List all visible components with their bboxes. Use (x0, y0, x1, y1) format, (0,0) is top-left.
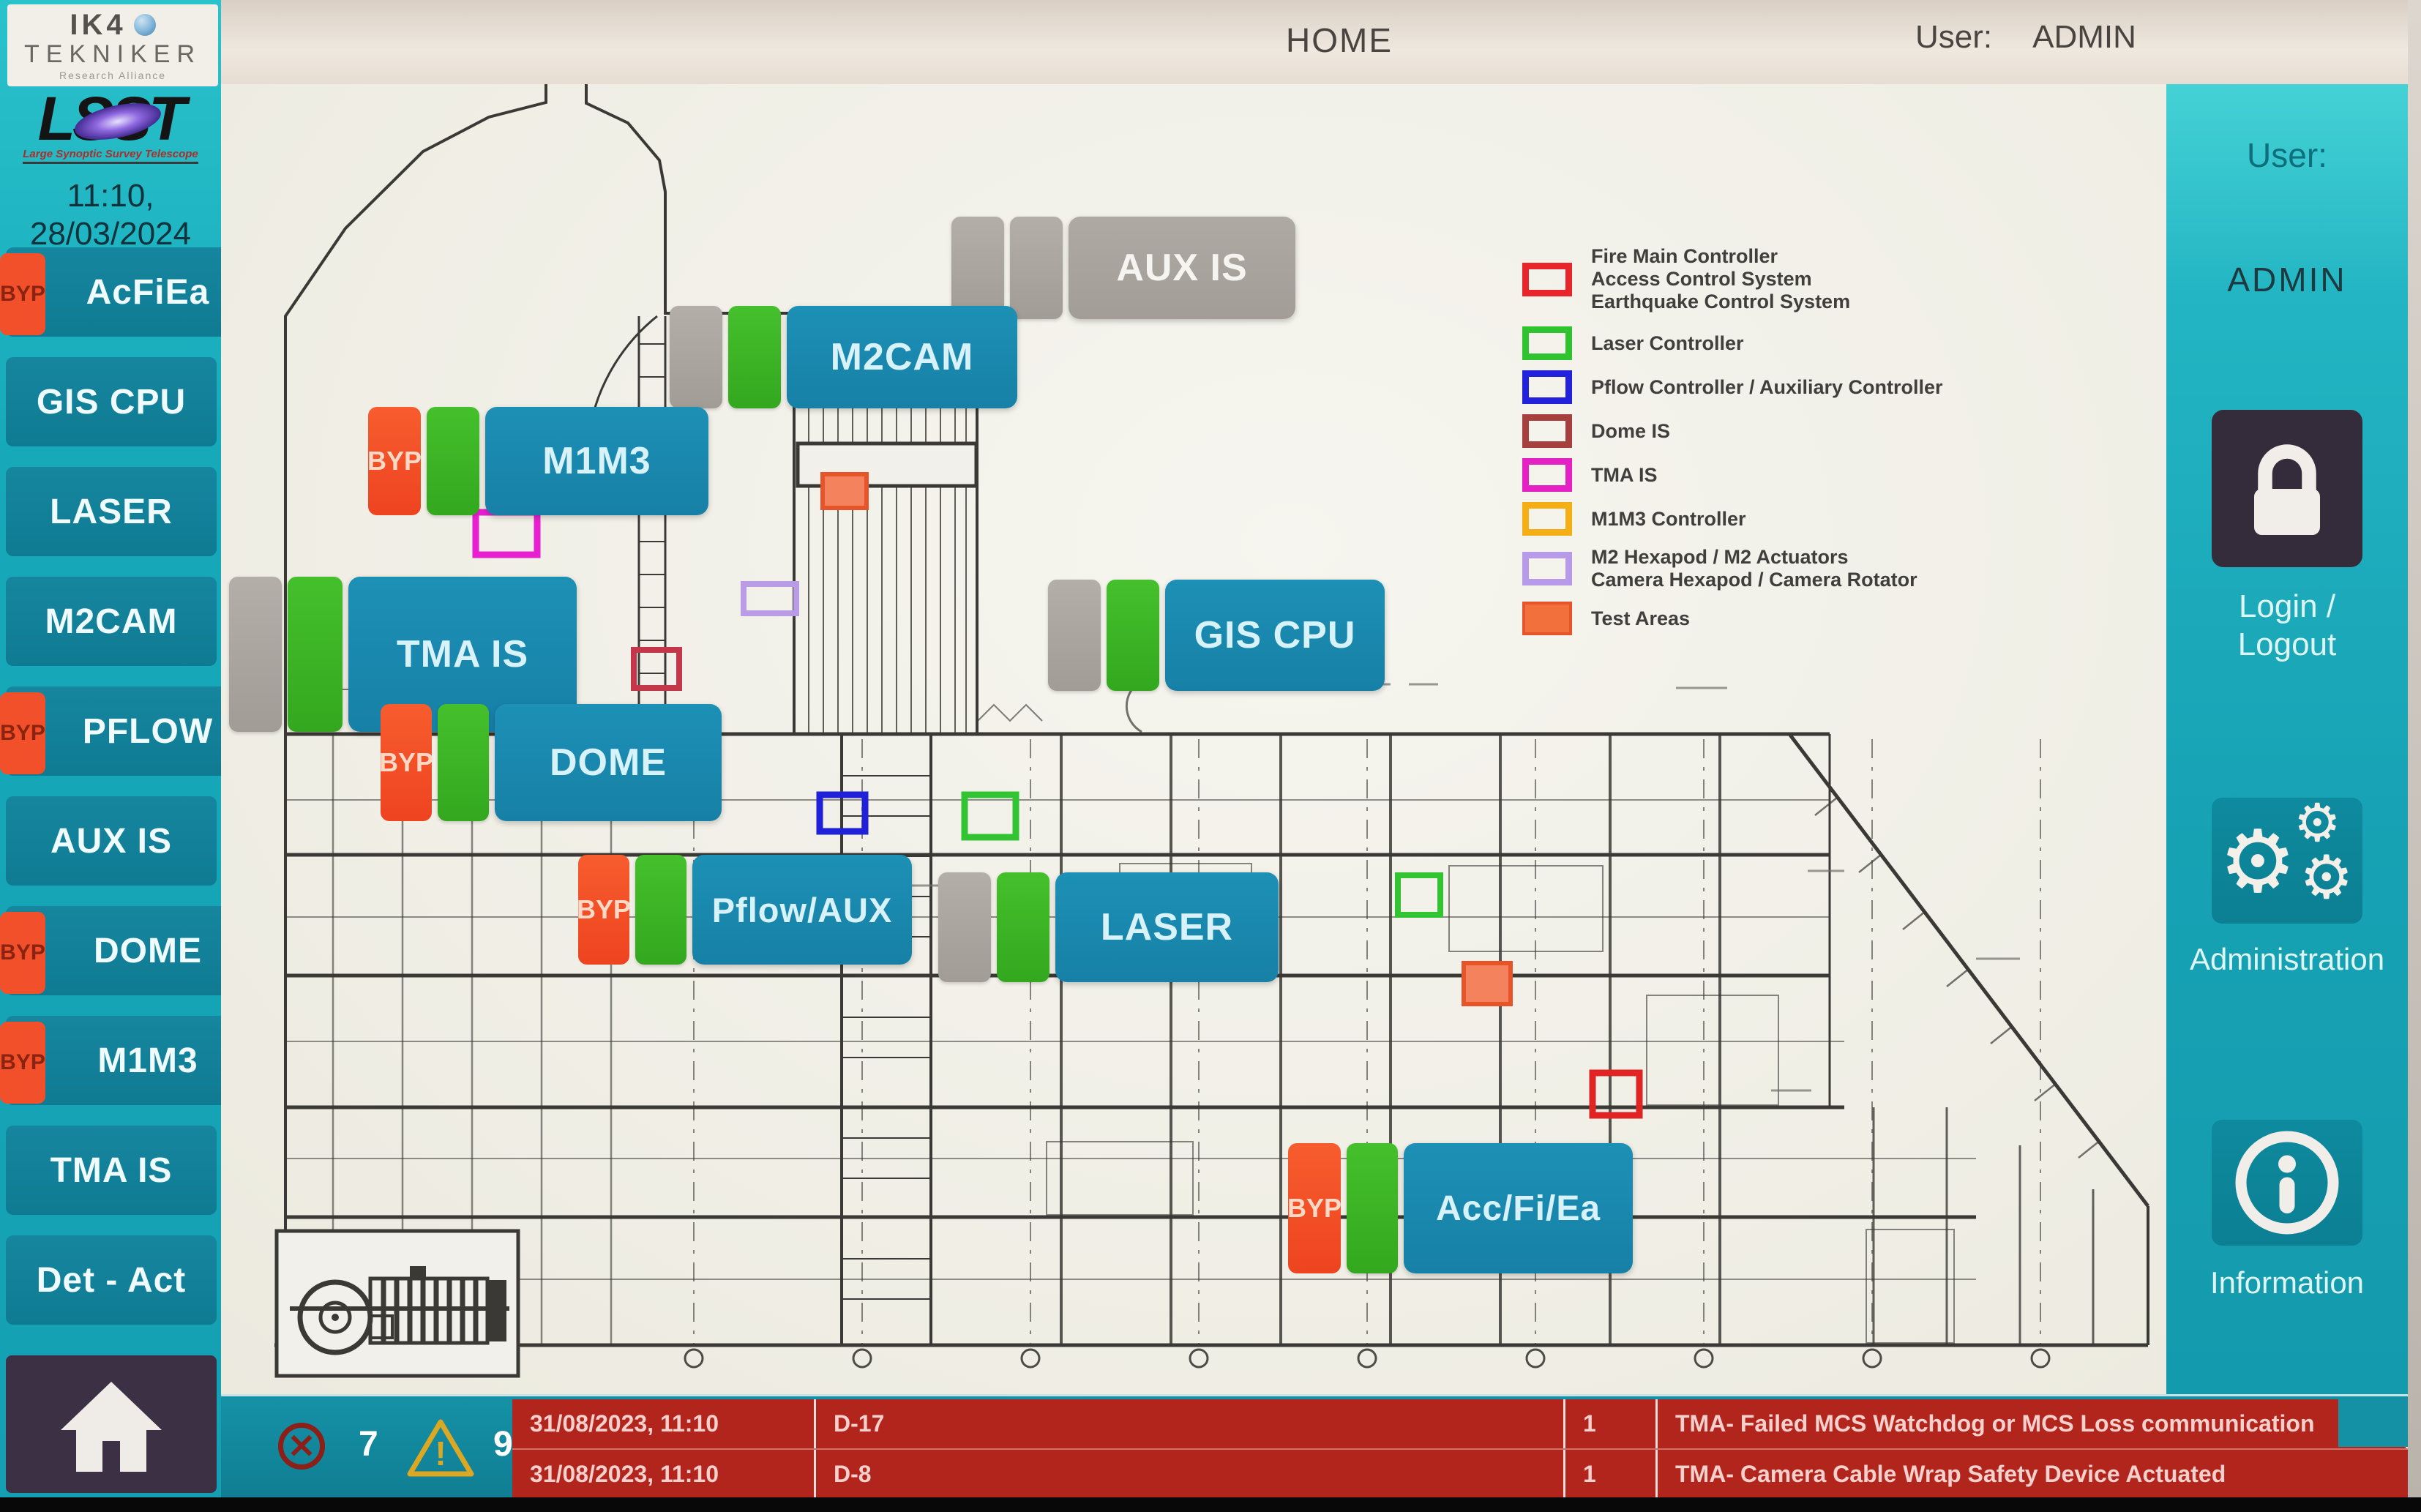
diagram-group-dome: BYP DOME (381, 704, 722, 821)
legend-label: Fire Main Controller (1591, 245, 1850, 268)
tekniker-logo-text: TEKNIKER (24, 42, 201, 68)
diagram-group-m2cam: M2CAM (670, 306, 1017, 408)
legend-label: TMA IS (1591, 464, 1658, 487)
status-indicator (670, 306, 722, 408)
bypass-badge: BYP (1288, 1143, 1341, 1273)
status-indicator (1107, 580, 1159, 691)
header-user-value: ADMIN (2032, 19, 2136, 55)
alarm-row[interactable]: 31/08/2023, 11:10 D-17 1 TMA- Failed MCS… (512, 1399, 2408, 1448)
ik4-tagline: Research Alliance (59, 70, 166, 81)
diagram-button-m2cam[interactable]: M2CAM (787, 306, 1017, 408)
time-text: 11:10, (0, 177, 221, 215)
legend-label: Pflow Controller / Auxiliary Controller (1591, 376, 1943, 399)
diagram-group-acc-fi-ea: BYP Acc/Fi/Ea (1288, 1143, 1633, 1273)
header-user: User:ADMIN (1915, 19, 2136, 56)
diagram-group-laser: LASER (938, 872, 1279, 982)
left-sidebar: IK4 TEKNIKER Research Alliance LSST Larg… (0, 0, 221, 1497)
lsst-logo: LSST Large Synoptic Survey Telescope (11, 89, 210, 171)
alarm-count: 1 (1565, 1399, 1658, 1448)
warning-count: 9 (493, 1424, 513, 1464)
legend-swatch-m1m3 (1522, 502, 1572, 536)
diagram-button-gis-cpu[interactable]: GIS CPU (1165, 580, 1385, 691)
administration-label: Administration (2166, 940, 2408, 978)
gears-icon: ⚙⚙⚙ (2218, 806, 2357, 916)
marker-dome-is (634, 650, 679, 688)
alarm-message: TMA- Failed MCS Watchdog or MCS Loss com… (1658, 1399, 2408, 1448)
alarm-list: 31/08/2023, 11:10 D-17 1 TMA- Failed MCS… (512, 1399, 2408, 1497)
status-indicator (951, 217, 1004, 319)
sidebar-item-det-act[interactable]: Det - Act (6, 1235, 217, 1325)
information-label: Information (2166, 1264, 2408, 1302)
diagram-button-pflow-aux[interactable]: Pflow/AUX (692, 855, 912, 965)
alarm-status-bar: ✕ 7 ! 9 31/08/2023, 11:10 D-17 1 TMA- Fa… (221, 1394, 2408, 1497)
bypass-badge-dome: BYP (0, 912, 45, 994)
login-logout-label: Login / Logout (2203, 588, 2371, 664)
legend-label: Earthquake Control System (1591, 291, 1850, 313)
screen-bottom-edge (0, 1497, 2421, 1512)
alarm-row[interactable]: 31/08/2023, 11:10 D-8 1 TMA- Camera Cabl… (512, 1448, 2408, 1499)
marker-hexapod (744, 584, 796, 613)
alarm-date: 31/08/2023, 11:10 (512, 1450, 816, 1499)
ik4-tekniker-logo: IK4 TEKNIKER Research Alliance (7, 4, 218, 86)
header-user-label: User: (1915, 19, 1992, 55)
legend-swatch-fire-access-earthquake (1522, 263, 1572, 296)
hmi-screen: HOME User:ADMIN IK4 TEKNIKER Research Al… (0, 0, 2421, 1497)
status-indicator (1347, 1143, 1398, 1273)
bypass-badge-pflow: BYP (0, 692, 45, 774)
warning-count-icon[interactable]: ! (405, 1417, 476, 1483)
sidebar-item-tma-is[interactable]: TMA IS (6, 1126, 217, 1215)
status-indicator (1048, 580, 1101, 691)
datetime-display: 11:10, 28/03/2024 (0, 177, 221, 253)
marker-test-area-2 (1464, 963, 1511, 1004)
alarm-count: 1 (1565, 1450, 1658, 1499)
screen-edge (2408, 0, 2421, 1497)
bypass-badge: BYP (578, 855, 629, 965)
legend-label: M2 Hexapod / M2 Actuators (1591, 546, 1917, 569)
alarm-row-cap (2338, 1399, 2408, 1447)
legend-label: M1M3 Controller (1591, 508, 1746, 531)
diagram-group-m1m3: BYP M1M3 (368, 407, 708, 515)
right-sidebar: User: ADMIN Login / Logout ⚙⚙⚙ Administr… (2166, 84, 2408, 1394)
bypass-badge: BYP (381, 704, 432, 821)
home-icon (56, 1375, 166, 1474)
ik4-sphere-icon (134, 14, 156, 36)
sidebar-item-aux-is[interactable]: AUX IS (6, 796, 217, 886)
administration-button[interactable]: ⚙⚙⚙ (2212, 798, 2362, 924)
legend-label: Test Areas (1591, 607, 1690, 630)
status-indicator (938, 872, 991, 982)
status-indicator (635, 855, 686, 965)
svg-text:!: ! (435, 1434, 446, 1472)
sidebar-item-gis-cpu[interactable]: GIS CPU (6, 357, 217, 446)
marker-tma-is (476, 512, 537, 555)
legend-label: Camera Hexapod / Camera Rotator (1591, 569, 1917, 591)
page-title: HOME (1286, 20, 1393, 60)
bypass-badge: BYP (368, 407, 421, 515)
legend-swatch-hexapod (1522, 552, 1572, 585)
information-button[interactable] (2212, 1120, 2362, 1246)
diagram-button-acc-fi-ea[interactable]: Acc/Fi/Ea (1404, 1143, 1633, 1273)
header-bar: HOME User:ADMIN (221, 0, 2408, 84)
legend-label: Dome IS (1591, 420, 1670, 443)
diagram-button-laser[interactable]: LASER (1055, 872, 1279, 982)
status-indicator (997, 872, 1049, 982)
diagram-group-aux-is: AUX IS (951, 217, 1295, 319)
lock-icon (2232, 434, 2342, 544)
alarm-date: 31/08/2023, 11:10 (512, 1399, 816, 1448)
bypass-badge-m1m3: BYP (0, 1022, 45, 1104)
user-value: ADMIN (2166, 260, 2408, 299)
marker-laser-1 (965, 795, 1016, 837)
legend-swatch-pflow (1522, 370, 1572, 404)
error-count: 7 (359, 1424, 378, 1464)
diagram-button-aux-is[interactable]: AUX IS (1069, 217, 1295, 319)
legend-label: Access Control System (1591, 268, 1850, 291)
sidebar-item-laser[interactable]: LASER (6, 467, 217, 556)
sidebar-item-m2cam[interactable]: M2CAM (6, 577, 217, 666)
transporter-cart-drawing (277, 1231, 518, 1376)
alarm-message: TMA- Camera Cable Wrap Safety Device Act… (1658, 1450, 2408, 1499)
marker-test-area-1 (823, 474, 867, 508)
status-indicator (288, 577, 343, 732)
alarm-zone: D-17 (816, 1399, 1565, 1448)
login-logout-button[interactable] (2212, 410, 2362, 567)
diagram-button-m1m3[interactable]: M1M3 (485, 407, 708, 515)
ik4-logo-text: IK4 (70, 10, 126, 40)
user-label: User: (2166, 135, 2408, 175)
alarm-zone: D-8 (816, 1450, 1565, 1499)
legend-swatch-dome-is (1522, 414, 1572, 448)
legend-swatch-test-areas (1522, 602, 1572, 635)
error-count-icon[interactable]: ✕ (278, 1423, 325, 1470)
status-indicator (1010, 217, 1063, 319)
status-indicator (427, 407, 479, 515)
legend-swatch-tma-is (1522, 458, 1572, 492)
legend-swatch-laser (1522, 326, 1572, 360)
diagram-group-gis-cpu: GIS CPU (1048, 580, 1385, 691)
marker-laser-2 (1398, 875, 1440, 915)
home-button[interactable] (6, 1355, 217, 1493)
status-indicator (438, 704, 489, 821)
bypass-badge-acfiea: BYP (0, 253, 45, 335)
status-indicator (229, 577, 282, 732)
status-indicator (728, 306, 781, 408)
legend-label: Laser Controller (1591, 332, 1744, 355)
info-icon (2232, 1128, 2342, 1238)
diagram-button-dome[interactable]: DOME (495, 704, 722, 821)
legend: Fire Main Controller Access Control Syst… (1522, 245, 2020, 645)
diagram-group-pflow-aux: BYP Pflow/AUX (578, 855, 912, 965)
